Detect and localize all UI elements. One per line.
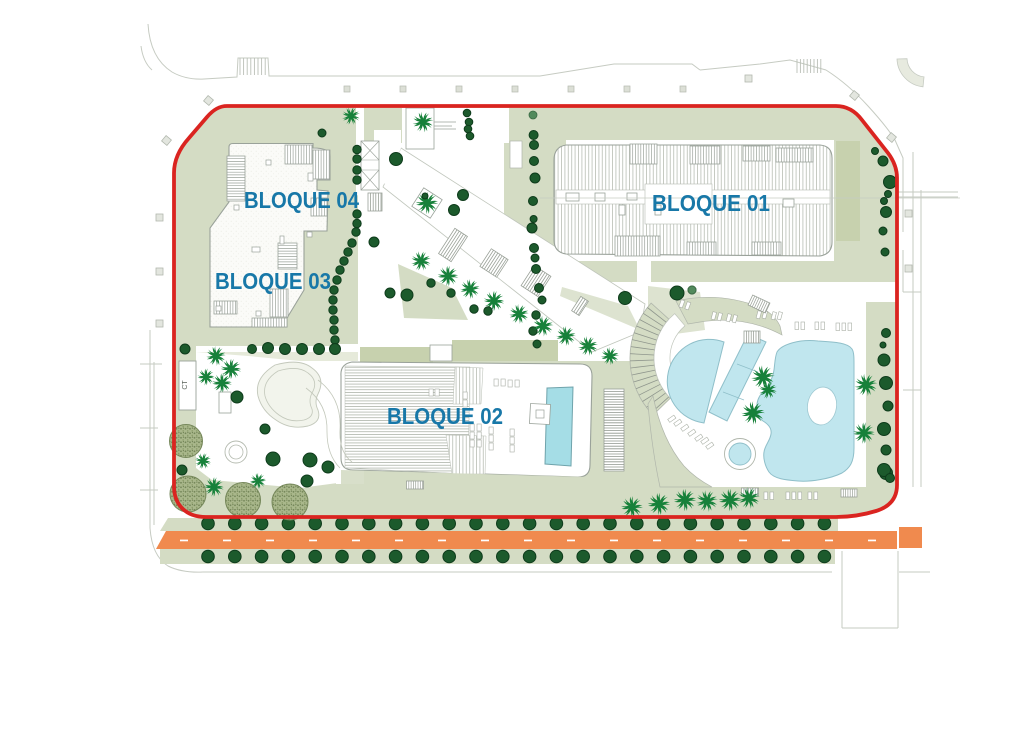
svg-text:BLOQUE 04: BLOQUE 04 bbox=[244, 187, 359, 213]
svg-text:BLOQUE 03: BLOQUE 03 bbox=[215, 268, 331, 294]
svg-text:BLOQUE 02: BLOQUE 02 bbox=[387, 403, 503, 429]
svg-text:BLOQUE 01: BLOQUE 01 bbox=[652, 190, 770, 216]
svg-text:CT: CT bbox=[182, 380, 189, 390]
